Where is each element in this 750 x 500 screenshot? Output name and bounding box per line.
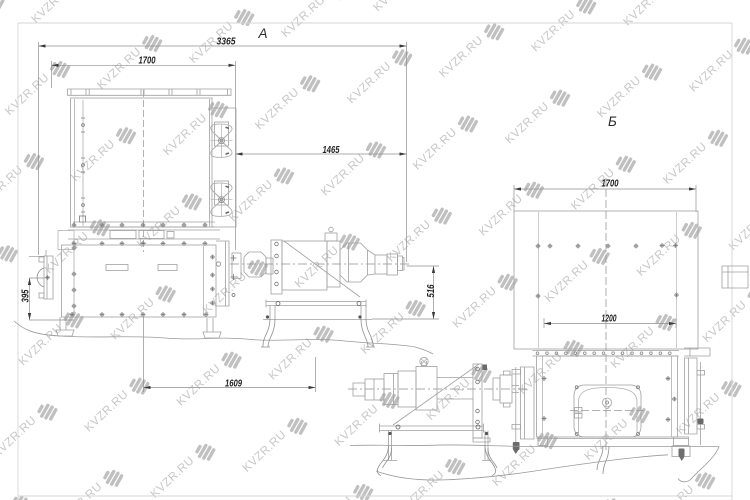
- svg-text:1700: 1700: [139, 56, 156, 67]
- svg-text:516: 516: [426, 284, 437, 297]
- svg-text:395: 395: [21, 289, 32, 302]
- svg-text:А: А: [258, 26, 268, 41]
- svg-text:Б: Б: [608, 114, 617, 129]
- svg-text:1609: 1609: [225, 379, 242, 390]
- svg-text:1465: 1465: [323, 145, 340, 156]
- svg-text:1200: 1200: [602, 314, 617, 325]
- svg-text:1700: 1700: [602, 179, 619, 190]
- svg-text:3365: 3365: [217, 37, 236, 48]
